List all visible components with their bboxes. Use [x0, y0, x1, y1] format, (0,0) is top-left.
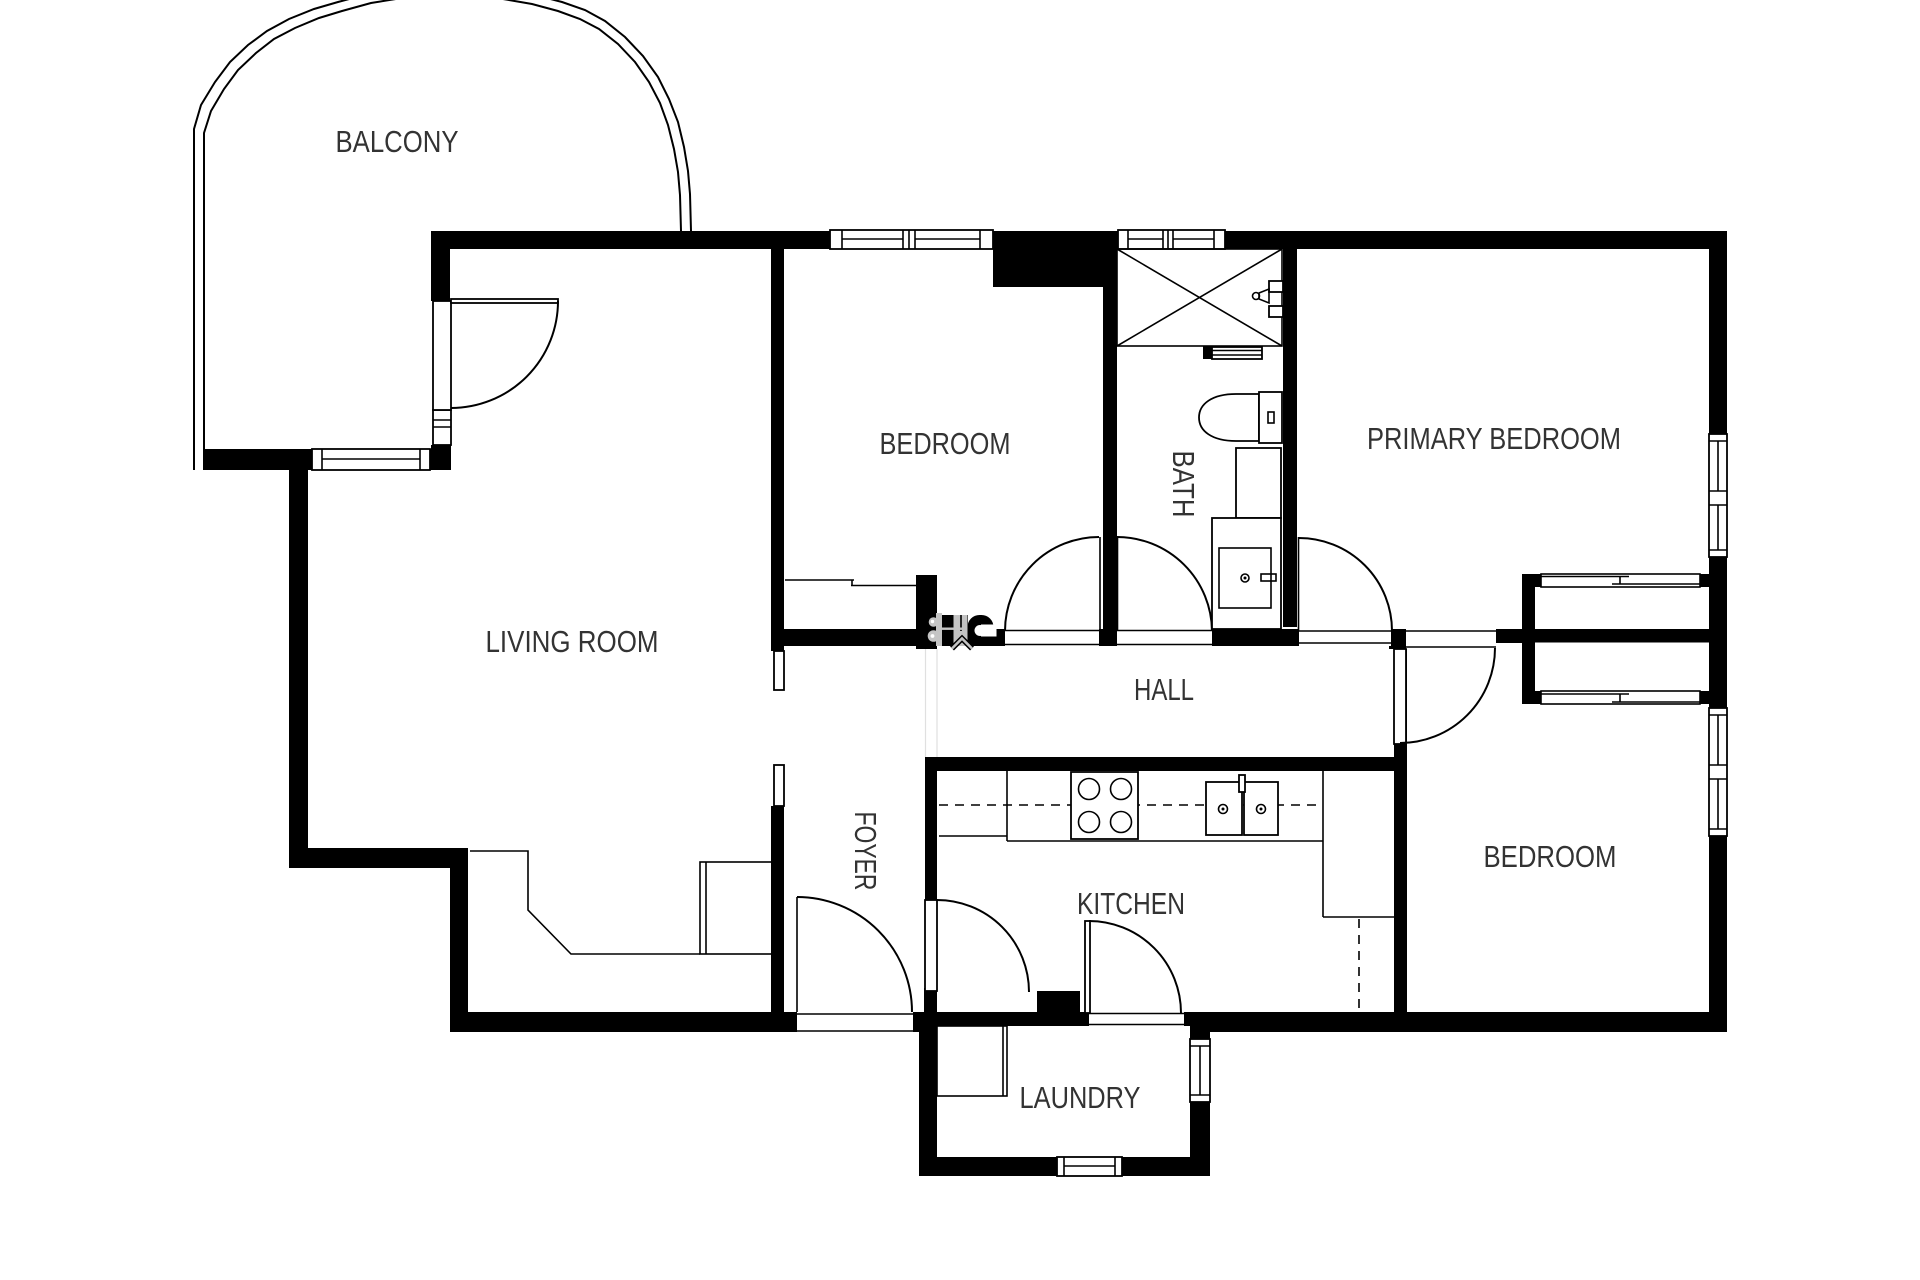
svg-text:LIVING ROOM: LIVING ROOM — [486, 624, 659, 659]
svg-text:LAUNDRY: LAUNDRY — [1020, 1080, 1141, 1115]
svg-text:BEDROOM: BEDROOM — [880, 426, 1011, 461]
svg-text:BATH: BATH — [1166, 451, 1201, 518]
svg-text:BALCONY: BALCONY — [336, 124, 459, 159]
svg-text:HALL: HALL — [1134, 672, 1194, 707]
svg-text:KITCHEN: KITCHEN — [1077, 886, 1185, 921]
svg-text:BEDROOM: BEDROOM — [1484, 839, 1617, 874]
svg-text:PRIMARY BEDROOM: PRIMARY BEDROOM — [1367, 421, 1621, 456]
svg-text:FOYER: FOYER — [848, 812, 883, 891]
